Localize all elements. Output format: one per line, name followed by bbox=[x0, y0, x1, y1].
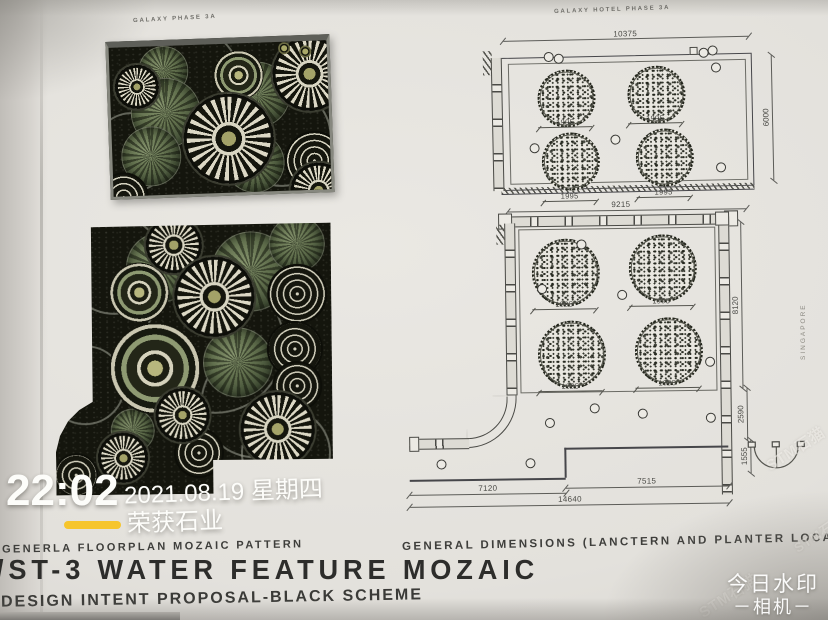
paving-edge bbox=[410, 478, 566, 482]
watermark-time: 22:02 bbox=[6, 466, 119, 516]
paving-edge bbox=[564, 445, 728, 449]
mosaic-pattern-image-lower bbox=[54, 223, 335, 496]
mosaic-starburst bbox=[155, 388, 210, 443]
watermark-brand: 荣获石业 bbox=[126, 500, 223, 538]
dim-right-label: 6000 bbox=[761, 108, 770, 126]
sheet-side-text: SINGAPORE bbox=[800, 268, 807, 360]
dim-line-bottom-left bbox=[410, 493, 566, 496]
paving-step bbox=[564, 448, 566, 478]
mosaic-pattern-image-upper bbox=[105, 34, 334, 200]
lantern-circle bbox=[525, 458, 535, 468]
wall-end-post bbox=[715, 211, 729, 225]
wall-right bbox=[718, 216, 733, 494]
drawing-lower-plan: 9215 1995 1995 1995 1995 8120 2590 bbox=[406, 193, 828, 517]
dim-top-label: 10375 bbox=[613, 29, 637, 38]
dim-top-label: 9215 bbox=[611, 200, 630, 209]
mosaic-starburst bbox=[174, 256, 255, 337]
lantern-circle bbox=[638, 409, 648, 419]
mosaic-medallion bbox=[109, 262, 170, 323]
lantern-circle bbox=[576, 239, 586, 249]
wall-break-mark bbox=[496, 225, 504, 245]
mosaic-foliage-rosette bbox=[203, 327, 274, 398]
wall-top bbox=[504, 213, 730, 227]
photographed-design-sheet: GALAXY PHASE 3A bbox=[0, 0, 828, 620]
lantern-circle bbox=[537, 284, 547, 294]
lantern-circle bbox=[436, 459, 446, 469]
lantern-circle bbox=[706, 413, 716, 423]
drawing-upper-plan: 10375 6000 1995 1995 1995 1995 bbox=[486, 25, 800, 211]
lantern-circle bbox=[545, 418, 555, 428]
wall-end-post bbox=[409, 437, 419, 452]
top-shadow bbox=[0, 0, 828, 16]
dim-right-mid-label: 2590 bbox=[736, 405, 745, 423]
dim-line-right-upper bbox=[740, 222, 743, 388]
mosaic-starburst bbox=[240, 392, 315, 467]
table-edge bbox=[0, 612, 180, 620]
lantern-base bbox=[690, 47, 698, 55]
lantern-circle bbox=[617, 290, 627, 300]
dim-line-right-mid bbox=[746, 388, 748, 440]
mosaic-ring-rosette bbox=[267, 264, 328, 325]
lantern-circle bbox=[705, 357, 715, 367]
watermark-app-sub: －相机－ bbox=[733, 593, 813, 619]
dim-bottom-left-label: 7120 bbox=[478, 484, 497, 493]
dim-line-right bbox=[771, 55, 775, 180]
wall-left bbox=[504, 223, 517, 395]
lantern-circle bbox=[590, 403, 600, 413]
sheet-title: /ST-3 WATER FEATURE MOZAIC bbox=[0, 554, 539, 586]
wall-break-mark bbox=[483, 51, 493, 75]
watermark-accent-bar bbox=[64, 521, 121, 529]
dim-right-upper-label: 8120 bbox=[731, 296, 740, 314]
